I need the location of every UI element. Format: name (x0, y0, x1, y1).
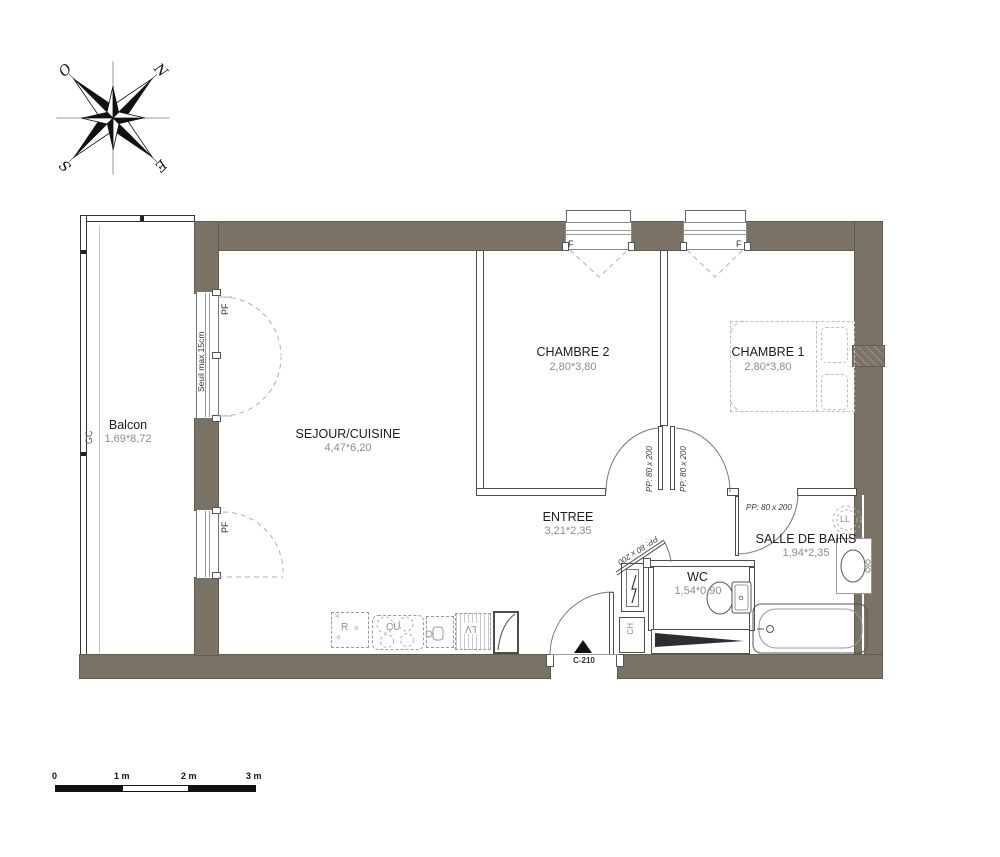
window-label-chambre2: F (568, 239, 574, 249)
compass-north-label: N (150, 60, 171, 81)
french-door-frame-2 (196, 509, 219, 579)
balcon-name: Balcon (93, 418, 163, 432)
wall-bottom-right-segment (618, 655, 882, 678)
chambre2-name: CHAMBRE 2 (513, 345, 633, 359)
floor-plan: N E S O (0, 0, 1000, 857)
entree-dim: 3,21*2,35 (518, 525, 618, 537)
window-jamb (744, 242, 751, 251)
scale-tick-2m: 2 m (181, 771, 197, 781)
window-jamb (212, 572, 221, 579)
window-jamb (680, 242, 687, 251)
threshold-note: Seuil max 15cm (196, 316, 206, 392)
wc-wall-left (648, 567, 654, 631)
wall-thermal-break (853, 346, 884, 366)
balcon-dim: 1,69*8,72 (93, 433, 163, 445)
partition-chambre2-chambre1 (660, 250, 668, 426)
scale-tick-3m: 3 m (246, 771, 262, 781)
scale-tick-0: 0 (52, 771, 57, 781)
scale-segment-3 (189, 785, 256, 792)
sdb-name: SALLE DE BAINS (741, 532, 871, 546)
window-line (683, 234, 747, 235)
french-door-line (209, 511, 210, 577)
wc-name: WC (675, 570, 720, 584)
wall-balcony-upper (195, 222, 218, 293)
door-size-sdb: PP: 80 x 200 (746, 503, 792, 512)
partition-sdb-top (797, 488, 857, 496)
railing-tick (81, 250, 86, 254)
snowflake-icon: ✳ (335, 633, 342, 642)
door-size-chambre2: PP: 80 x 200 (645, 428, 654, 492)
balcony-railing-left (80, 215, 87, 678)
washing-machine-label: LL (840, 514, 850, 524)
door-jamb-entry (546, 654, 554, 667)
entry-direction-triangle (574, 640, 592, 653)
scale-tick-1m: 1 m (114, 771, 130, 781)
partition-door-post (727, 488, 739, 496)
window-label-chambre1: F (736, 239, 742, 249)
sejour-dim: 4,47*6,20 (278, 442, 418, 454)
chambre1-dim: 2,80*3,80 (708, 361, 828, 373)
sdb-dim: 1,94*2,35 (741, 547, 871, 559)
wc-wall-top (648, 560, 755, 567)
window-jamb (212, 415, 221, 422)
railing-tick (81, 452, 86, 456)
door-size-chambre1: PP: 80 x 200 (679, 428, 688, 492)
kitchen-sink-box (426, 616, 454, 648)
sejour-name: SEJOUR/CUISINE (278, 427, 418, 441)
electrical-panel-inner (626, 569, 639, 607)
window-line (565, 234, 632, 235)
bed-pillow (821, 374, 848, 410)
wall-top-left-segment (195, 222, 565, 250)
entry-door-ref: C-210 (565, 656, 603, 665)
compass-west-label: O (56, 61, 76, 81)
cooktop-label: CU (386, 622, 400, 633)
door-jamb-entry (616, 654, 624, 667)
door-leaf-chambre2 (658, 426, 663, 490)
chambre2-dim: 2,80*3,80 (513, 361, 633, 373)
french-door-label-1: PF (220, 293, 230, 315)
wc-wall-right (749, 567, 755, 631)
window-glazing-chambre2 (565, 222, 632, 250)
scale-segment-1 (55, 785, 122, 792)
wc-low-cabinet (651, 629, 750, 654)
balcony-railing-top (80, 215, 195, 222)
balcony-gc-label: GC (84, 420, 94, 444)
wall-right (855, 222, 882, 678)
water-heater-label: CH (626, 623, 635, 635)
wall-bottom-left-segment (80, 655, 550, 678)
partition-sejour-chambre2 (476, 250, 484, 492)
wall-balcony-lower (195, 578, 218, 655)
kitchen-tall-cabinet (493, 611, 519, 654)
partition-chambre2-entree (476, 488, 606, 496)
french-door-line (209, 293, 210, 417)
wall-balcony-mid (195, 419, 218, 510)
compass-rose: N E S O (38, 43, 188, 193)
french-door-label-2: PF (220, 511, 230, 533)
chambre1-name: CHAMBRE 1 (708, 345, 828, 359)
compass-east-label: E (151, 155, 170, 174)
fridge-label: R (341, 622, 348, 633)
door-leaf-entry (609, 592, 614, 655)
door-leaf-sdb (735, 496, 739, 556)
snowflake-icon: ✳ (353, 624, 360, 633)
window-line (565, 230, 632, 231)
scale-segment-2 (122, 785, 189, 792)
french-door-line (205, 511, 206, 577)
wall-top-mid-segment (632, 222, 683, 250)
window-jamb (212, 352, 221, 359)
compass-south-label: S (57, 156, 75, 174)
door-jamb-wc (643, 558, 651, 568)
snowflake-icon: ✳ (334, 612, 341, 621)
wc-dim: 1,54*0,90 (662, 585, 734, 597)
window-jamb (628, 242, 635, 251)
door-leaf-chambre1 (670, 426, 675, 490)
window-line (683, 230, 747, 231)
dishwasher-label: LV (464, 623, 478, 634)
entree-name: ENTREE (518, 510, 618, 524)
entry-threshold-line (550, 654, 618, 655)
railing-tick (140, 216, 144, 221)
